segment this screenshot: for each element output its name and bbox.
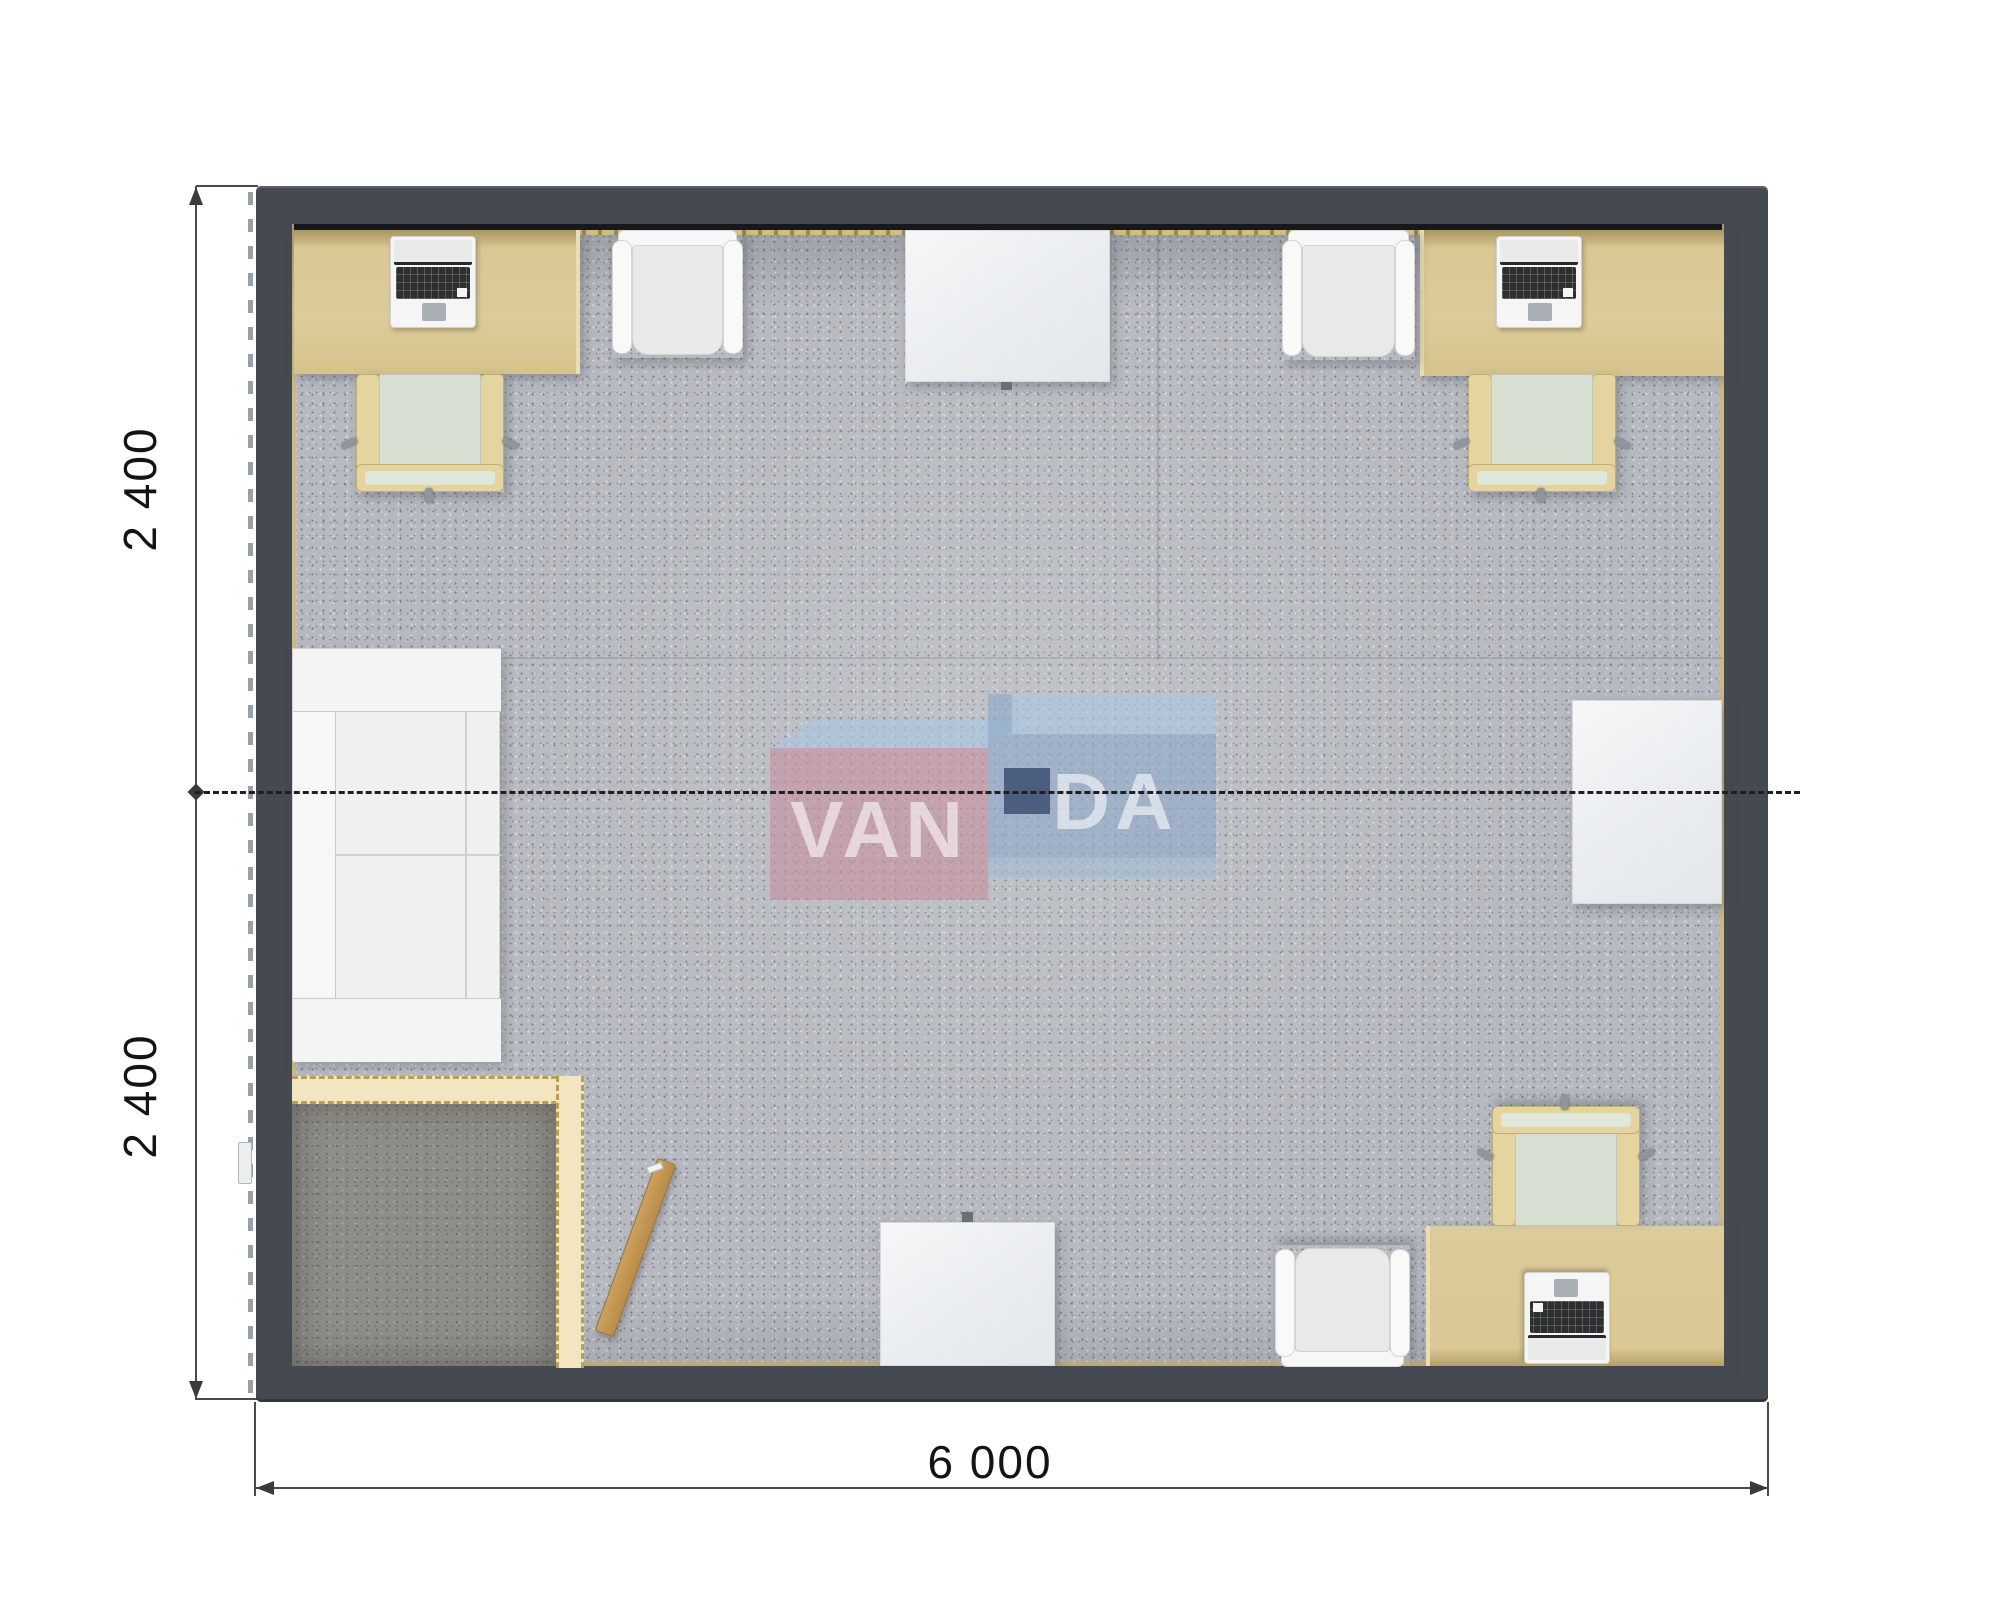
vestibule-floor (292, 1102, 558, 1366)
laptop-screen (1500, 240, 1578, 265)
chair-armrest (1468, 374, 1492, 470)
chair-seat (1515, 1132, 1617, 1226)
office-chair-bottom-right (1492, 1106, 1640, 1226)
chair-armrest (480, 374, 504, 470)
sofa (292, 648, 500, 1060)
vestibule-wall-right (556, 1076, 584, 1368)
sofa-front-edge (465, 712, 467, 998)
chair-armrest (1616, 1128, 1640, 1226)
entry-door-handle (238, 1142, 252, 1184)
armchair-armrest (1282, 240, 1302, 356)
chair-caster (425, 488, 433, 503)
table-top-center (905, 230, 1110, 382)
armchair-seat (632, 245, 723, 355)
chair-armrest (1592, 374, 1616, 470)
dimension-arrow-icon (1750, 1481, 1768, 1495)
laptop-screen (394, 240, 472, 265)
sofa-cushion-seam (335, 854, 501, 856)
chair-caster (1561, 1095, 1569, 1110)
floor-plan-canvas: 2 400 2 400 6 000 (0, 0, 2000, 1598)
armchair-top-left (612, 230, 743, 358)
armchair-seat (1295, 1248, 1390, 1352)
laptop-icon (390, 236, 476, 328)
armchair-bottom-right (1275, 1245, 1410, 1367)
vestibule-wall-top (292, 1076, 584, 1104)
dimension-arrow-icon (189, 1381, 203, 1399)
sofa-armrest (293, 649, 501, 712)
chair-armrest (1492, 1128, 1516, 1226)
chair-seat (1491, 374, 1593, 466)
table-leg-mark (1001, 382, 1012, 390)
armchair-armrest (1275, 1249, 1295, 1357)
table-leg-mark (962, 1212, 973, 1222)
laptop-keyboard (396, 267, 470, 299)
chair-armrest (356, 374, 380, 470)
chair-caster (1537, 488, 1545, 503)
chair-backpad (1477, 471, 1607, 485)
extension-line-top-left (196, 185, 258, 187)
chair-backpad (365, 471, 495, 485)
extension-line-bottom-left (196, 1398, 258, 1400)
laptop-keyboard (1502, 267, 1576, 299)
chair-seat (379, 374, 481, 466)
armchair-seat (1302, 245, 1395, 357)
dimension-label-left-top: 2 400 (110, 389, 170, 589)
armchair-armrest (612, 240, 632, 354)
section-dashed-line (195, 791, 1800, 794)
side-table-right (1572, 700, 1722, 904)
laptop-notch (1563, 288, 1573, 297)
office-chair-top-right (1468, 374, 1616, 492)
laptop-screen (1528, 1335, 1606, 1360)
watermark-blue-top-face (1012, 694, 1216, 734)
armchair-top-right (1282, 230, 1415, 360)
sofa-armrest (293, 998, 501, 1062)
office-chair-top-left (356, 374, 504, 492)
laptop-notch (457, 288, 467, 297)
armchair-armrest (723, 240, 743, 354)
dimension-arrow-icon (189, 187, 203, 205)
laptop-keyboard (1530, 1301, 1604, 1333)
laptop-icon (1524, 1272, 1610, 1364)
watermark-text-van: VAN (770, 760, 988, 900)
dimension-label-bottom: 6 000 (840, 1436, 1140, 1488)
laptop-touchpad (422, 303, 446, 321)
laptop-touchpad (1528, 303, 1552, 321)
dimension-arrow-icon (256, 1481, 274, 1495)
carpet-seam-horizontal (296, 657, 1722, 659)
carpet-seam-vertical (1157, 235, 1159, 660)
table-bottom-center (880, 1222, 1055, 1366)
laptop-touchpad (1554, 1279, 1578, 1297)
armchair-armrest (1395, 240, 1415, 356)
dimension-label-left-bottom: 2 400 (110, 996, 170, 1196)
left-wall-corrugation (248, 192, 253, 1398)
armchair-armrest (1390, 1249, 1410, 1357)
laptop-icon (1496, 236, 1582, 328)
laptop-notch (1533, 1303, 1543, 1312)
chair-backrest (1492, 1106, 1640, 1134)
chair-backpad (1501, 1113, 1631, 1127)
